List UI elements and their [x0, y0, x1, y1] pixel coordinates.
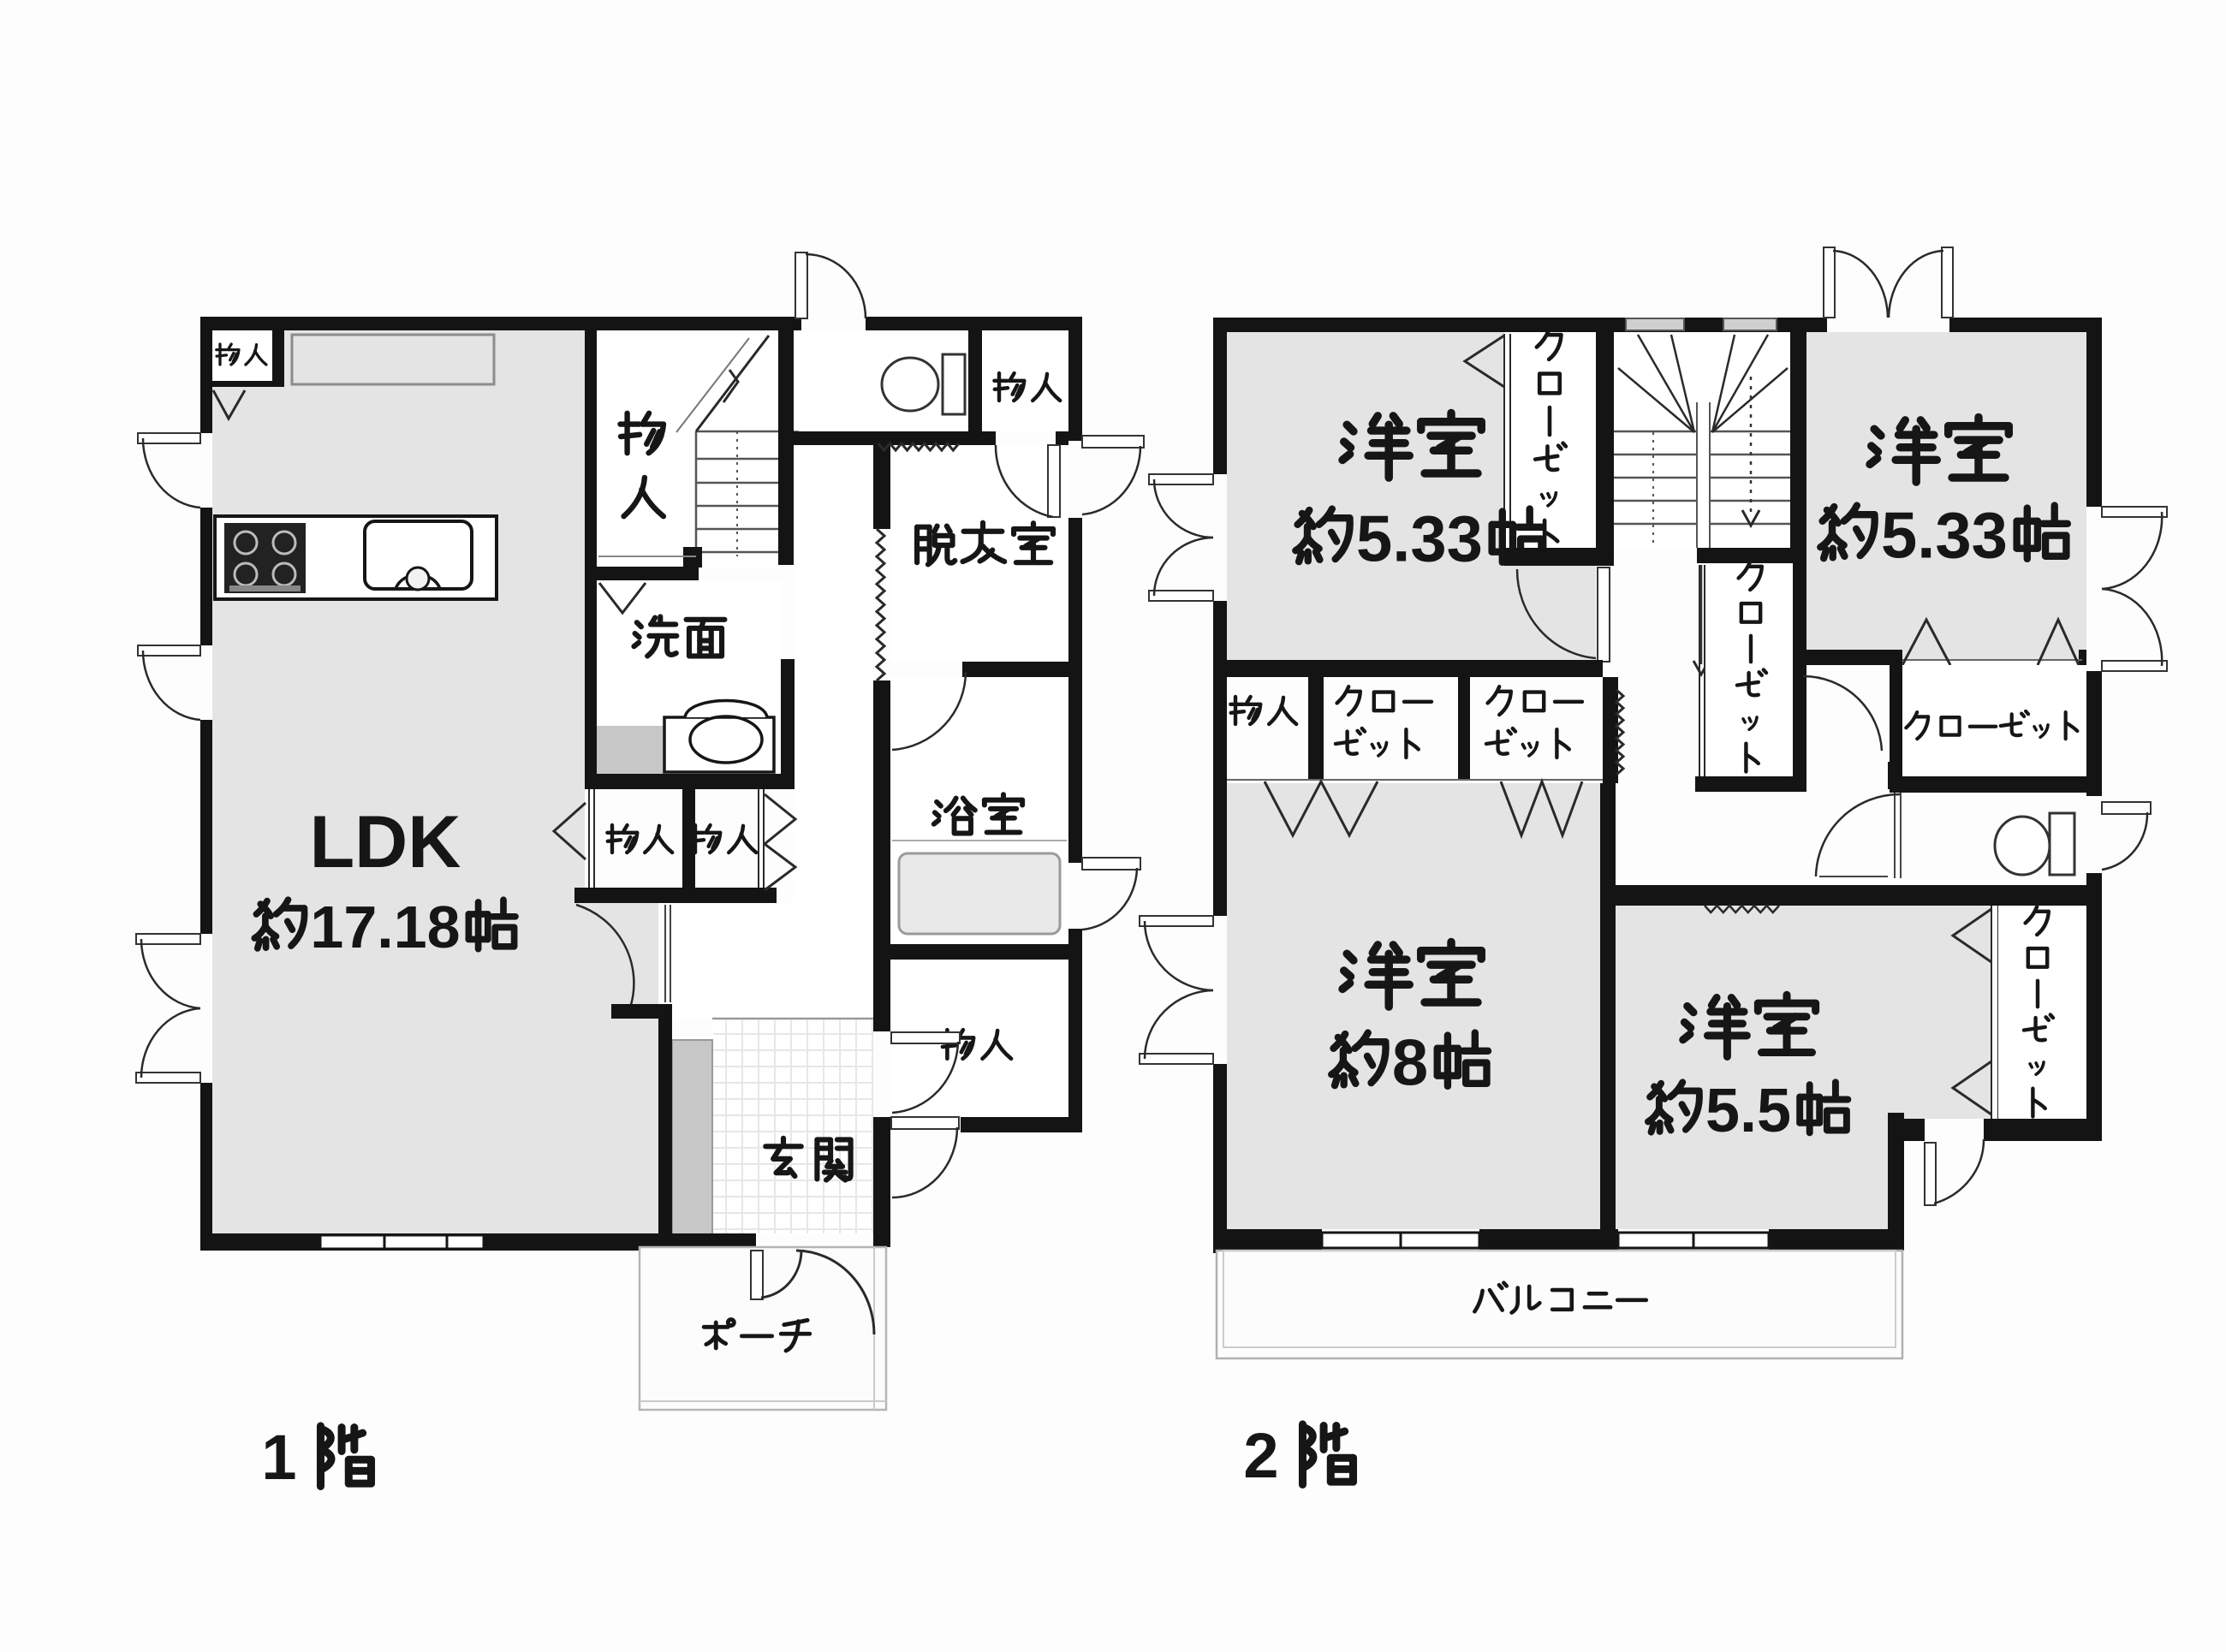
svg-text:5.33: 5.33	[1881, 499, 2008, 572]
svg-text:5.33: 5.33	[1356, 502, 1483, 575]
svg-text:2: 2	[1243, 1420, 1278, 1491]
svg-text:LDK: LDK	[310, 801, 461, 883]
svg-text:8: 8	[1392, 1026, 1428, 1099]
svg-text:5.5: 5.5	[1705, 1077, 1791, 1145]
svg-text:1: 1	[261, 1422, 296, 1493]
svg-text:17.18: 17.18	[310, 894, 460, 960]
